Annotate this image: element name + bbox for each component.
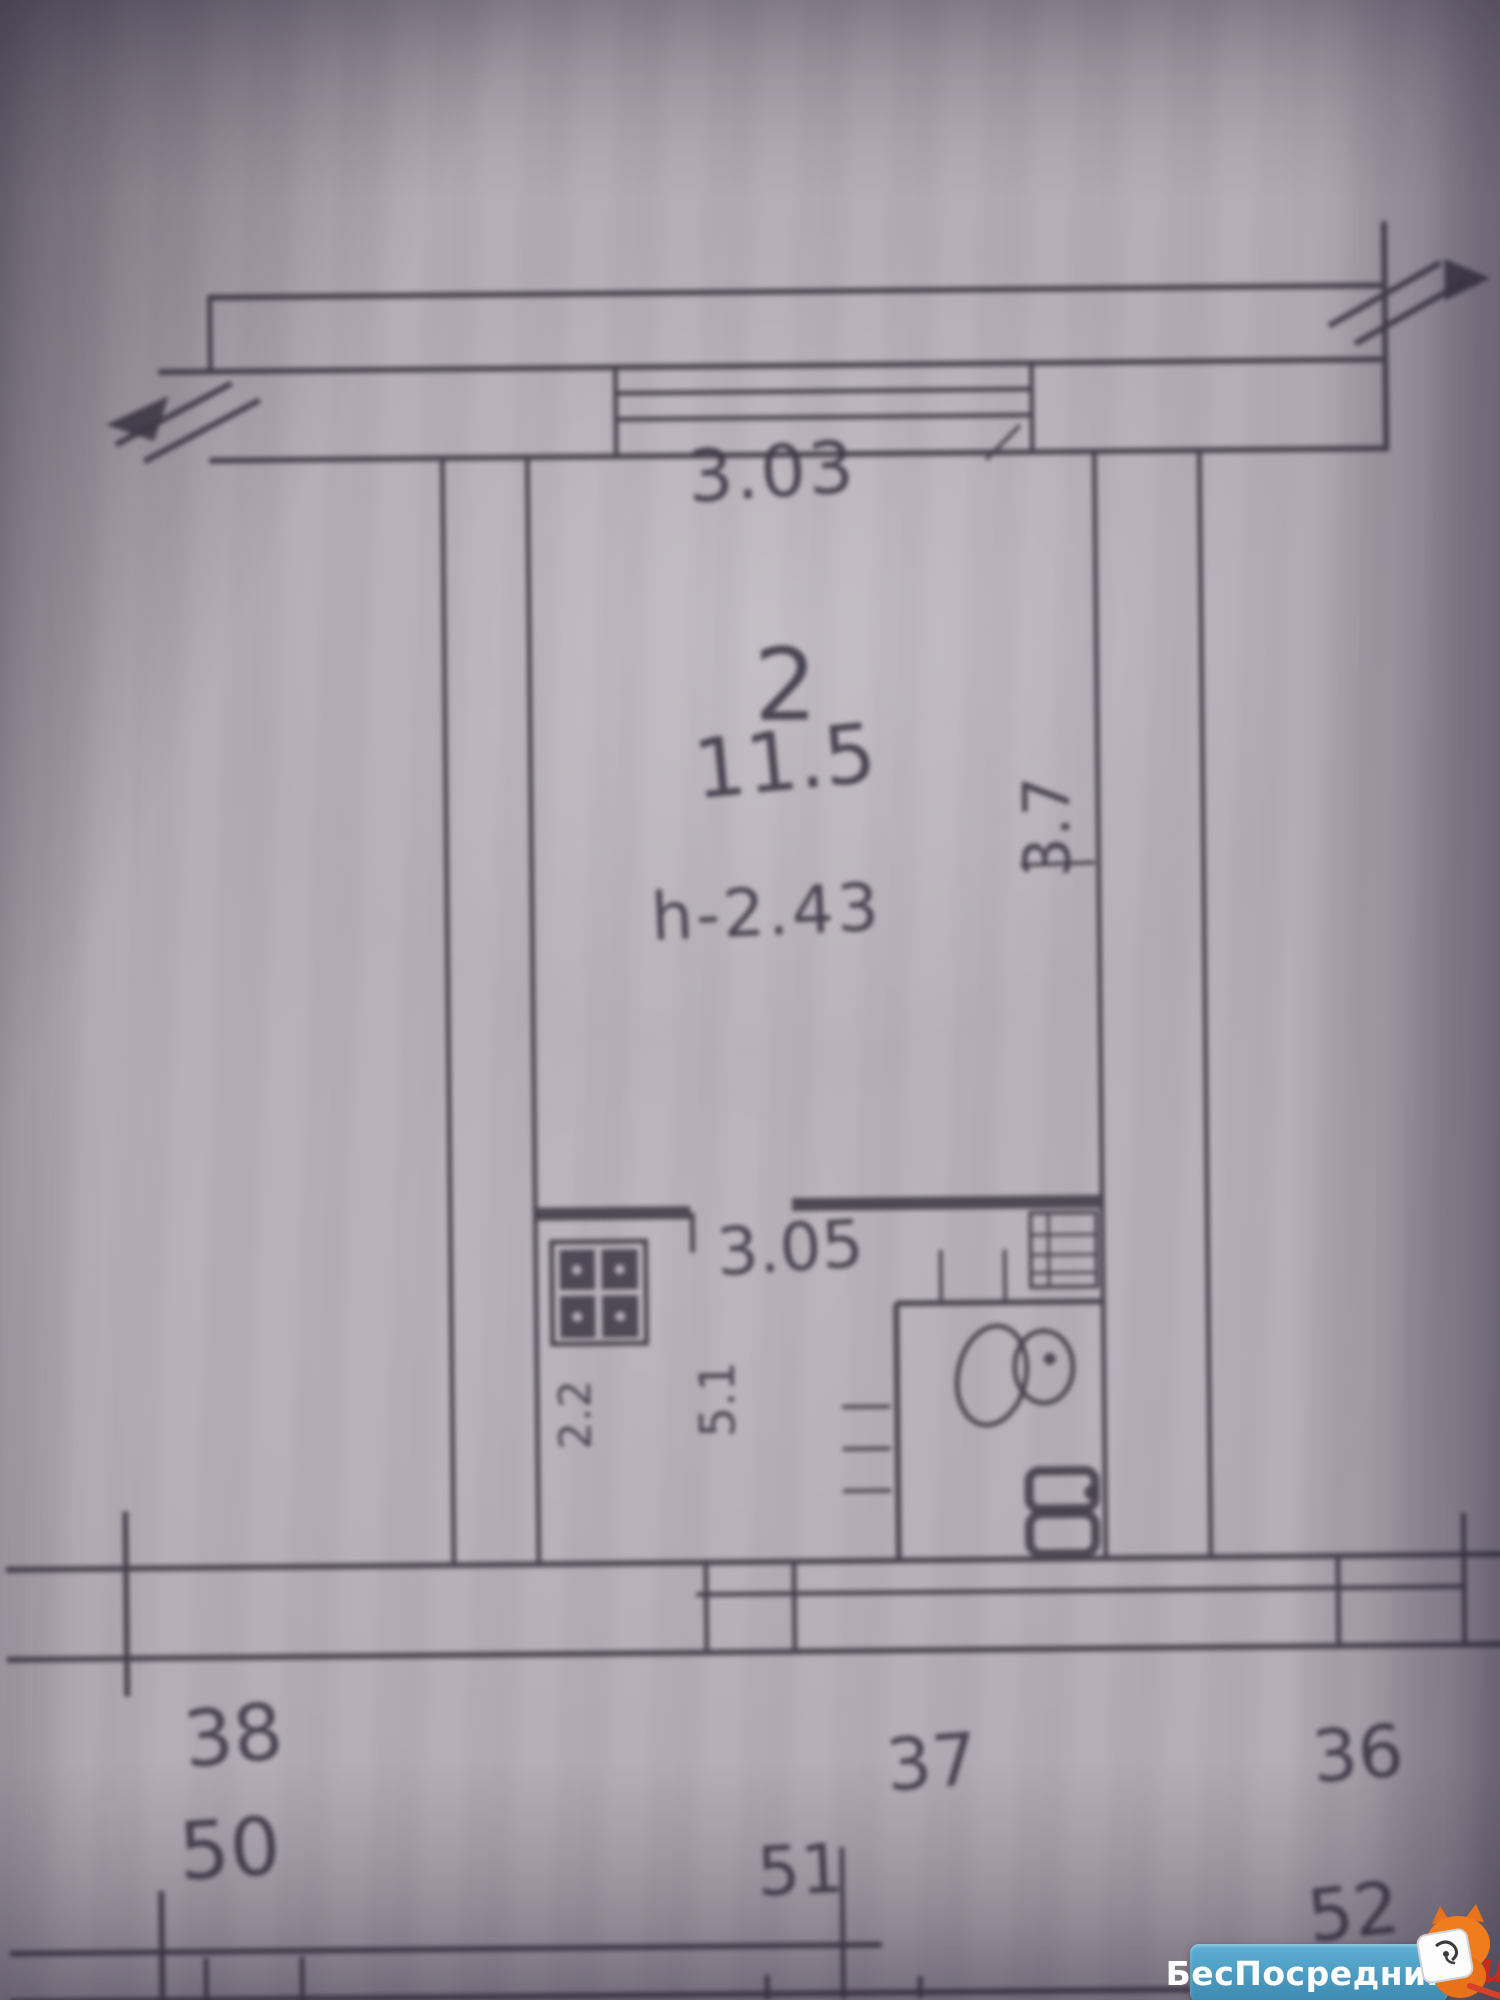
floor-plan-photo: 3.03 2 11.5 h-2.43 3.7 3.05 2.2 5.1 38 5… <box>0 0 1500 2000</box>
watermark-mascot-icon <box>1402 1902 1500 2000</box>
photo-vignette-overlay <box>0 0 1500 2000</box>
